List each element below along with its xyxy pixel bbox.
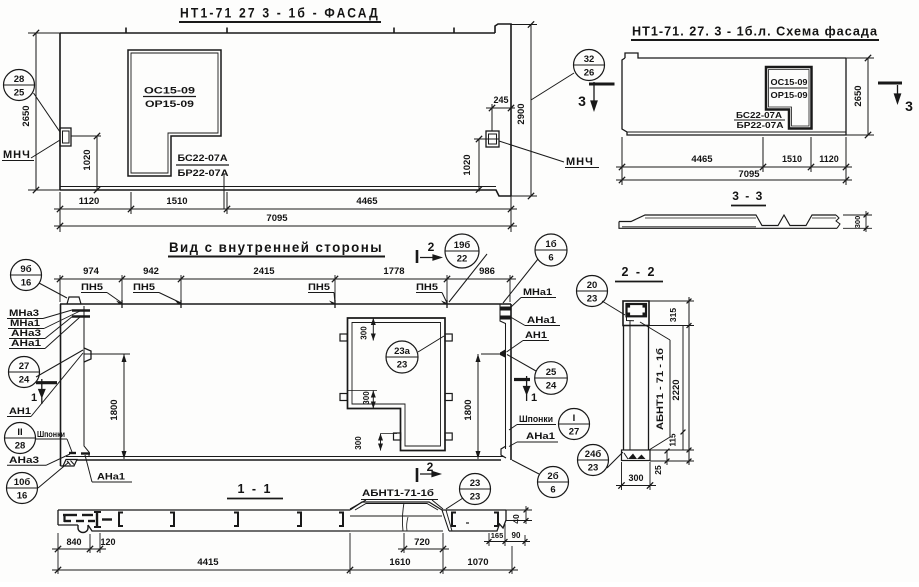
svg-text:7095: 7095 — [738, 169, 760, 180]
svg-text:23: 23 — [470, 478, 481, 489]
svg-text:1800: 1800 — [109, 399, 120, 420]
svg-text:Шпонки: Шпонки — [37, 429, 65, 439]
svg-text:ОР15-09: ОР15-09 — [771, 90, 808, 100]
svg-text:16: 16 — [21, 278, 32, 289]
svg-text:4465: 4465 — [691, 154, 713, 165]
svg-text:2: 2 — [427, 460, 434, 474]
svg-text:2 - 2: 2 - 2 — [621, 265, 656, 279]
svg-text:32: 32 — [584, 54, 595, 65]
svg-text:7095: 7095 — [266, 213, 288, 224]
svg-text:90: 90 — [512, 531, 521, 540]
svg-text:19б: 19б — [454, 240, 471, 251]
svg-text:1070: 1070 — [467, 557, 488, 568]
svg-text:АБНТ1 - 71 - 1б: АБНТ1 - 71 - 1б — [655, 348, 666, 430]
svg-text:4465: 4465 — [356, 196, 378, 207]
svg-text:23: 23 — [470, 492, 481, 503]
svg-text:2220: 2220 — [671, 379, 682, 400]
svg-text:1610: 1610 — [389, 557, 410, 568]
svg-text:ПН5: ПН5 — [81, 282, 104, 293]
svg-text:3 - 3: 3 - 3 — [732, 189, 764, 203]
svg-text:АН1: АН1 — [525, 330, 548, 341]
svg-text:2650: 2650 — [853, 85, 864, 106]
svg-text:1510: 1510 — [166, 196, 187, 207]
svg-text:1: 1 — [31, 392, 37, 404]
svg-text:25: 25 — [14, 88, 25, 99]
svg-text:БС22-07А: БС22-07А — [736, 110, 782, 120]
svg-text:986: 986 — [479, 266, 495, 277]
svg-text:АНа1: АНа1 — [11, 338, 42, 349]
svg-text:300: 300 — [362, 391, 371, 405]
svg-text:1120: 1120 — [79, 196, 100, 207]
svg-text:1510: 1510 — [782, 154, 802, 164]
svg-text:ОС15-09: ОС15-09 — [144, 86, 195, 97]
svg-text:МНЧ: МНЧ — [3, 149, 31, 161]
svg-text:27: 27 — [19, 361, 30, 372]
svg-text:1: 1 — [531, 392, 537, 404]
svg-text:942: 942 — [143, 266, 159, 277]
svg-text:23: 23 — [397, 360, 408, 371]
svg-text:1020: 1020 — [462, 154, 473, 175]
svg-text:24: 24 — [546, 381, 557, 392]
svg-text:2900: 2900 — [516, 103, 527, 124]
svg-text:2: 2 — [428, 240, 435, 254]
svg-text:24: 24 — [19, 375, 30, 386]
svg-text:АБНТ1-71-1б: АБНТ1-71-1б — [362, 488, 434, 499]
svg-text:ПН5: ПН5 — [416, 282, 439, 293]
svg-text:ОС15-09: ОС15-09 — [771, 77, 808, 87]
svg-text:1778: 1778 — [383, 266, 404, 277]
svg-text:120: 120 — [100, 537, 115, 547]
svg-text:40: 40 — [511, 514, 521, 524]
svg-text:23: 23 — [587, 294, 598, 305]
svg-text:АНа3: АНа3 — [9, 455, 39, 466]
svg-text:АНа1: АНа1 — [527, 315, 557, 326]
svg-text:245: 245 — [493, 95, 508, 105]
svg-text:БР22-07А: БР22-07А — [737, 120, 784, 130]
svg-text:300: 300 — [354, 436, 363, 450]
svg-text:ОР15-09: ОР15-09 — [145, 99, 194, 110]
svg-text:25: 25 — [653, 465, 663, 475]
svg-text:ПН5: ПН5 — [133, 282, 156, 293]
svg-text:1020: 1020 — [82, 149, 93, 170]
svg-text:Вид с внутренней стороны: Вид с внутренней стороны — [169, 239, 383, 255]
svg-text:3: 3 — [905, 98, 913, 114]
svg-text:1800: 1800 — [463, 399, 474, 420]
svg-text:974: 974 — [83, 266, 100, 277]
svg-text:АНа1: АНа1 — [526, 431, 556, 442]
svg-text:1 - 1: 1 - 1 — [237, 482, 272, 496]
svg-text:2б: 2б — [547, 471, 558, 482]
svg-text:300: 300 — [360, 326, 369, 340]
svg-text:720: 720 — [414, 537, 430, 548]
svg-text:300: 300 — [853, 216, 862, 229]
svg-text:БС22-07А: БС22-07А — [178, 153, 228, 164]
svg-text:2650: 2650 — [21, 105, 32, 126]
svg-text:6: 6 — [550, 485, 555, 496]
svg-text:10б: 10б — [14, 477, 31, 488]
svg-text:Шпонки: Шпонки — [519, 414, 553, 424]
svg-text:23а: 23а — [394, 346, 411, 357]
svg-text:6: 6 — [548, 253, 553, 264]
svg-text:1б: 1б — [545, 239, 556, 250]
svg-text:1120: 1120 — [819, 154, 839, 164]
svg-text:I: I — [573, 413, 576, 424]
svg-text:28: 28 — [15, 441, 26, 452]
svg-text:МНЧ: МНЧ — [566, 156, 594, 168]
svg-text:20: 20 — [587, 280, 598, 291]
svg-text:165: 165 — [491, 531, 504, 540]
svg-text:АНа1: АНа1 — [97, 472, 126, 483]
svg-text:22: 22 — [457, 254, 468, 265]
svg-text:МНа1: МНа1 — [523, 287, 553, 298]
svg-text:II: II — [17, 427, 22, 438]
svg-text:23: 23 — [588, 463, 599, 474]
svg-text:315: 315 — [668, 308, 678, 322]
svg-text:9б: 9б — [20, 264, 31, 275]
svg-text:БР22-07А: БР22-07А — [178, 168, 229, 179]
svg-text:840: 840 — [66, 537, 81, 547]
svg-text:3: 3 — [578, 93, 586, 109]
svg-text:4415: 4415 — [197, 557, 219, 568]
svg-text:НТ1-71 27 3 - 1б - ФАСАД: НТ1-71 27 3 - 1б - ФАСАД — [180, 5, 380, 21]
svg-text:24б: 24б — [585, 449, 602, 460]
svg-text:28: 28 — [14, 74, 25, 85]
svg-text:2415: 2415 — [253, 266, 275, 277]
svg-text:300: 300 — [628, 473, 643, 483]
svg-text:26: 26 — [584, 68, 595, 79]
svg-text:ПН5: ПН5 — [308, 282, 331, 293]
svg-text:25: 25 — [546, 367, 557, 378]
svg-text:27: 27 — [569, 427, 580, 438]
svg-text:16: 16 — [17, 491, 28, 502]
svg-text:НТ1-71. 27. 3 - 1б.л. Схема: НТ1-71. 27. 3 - 1б.л. Схема фасада — [632, 25, 878, 39]
svg-text:АН1: АН1 — [9, 406, 32, 417]
svg-text:115: 115 — [669, 433, 678, 446]
